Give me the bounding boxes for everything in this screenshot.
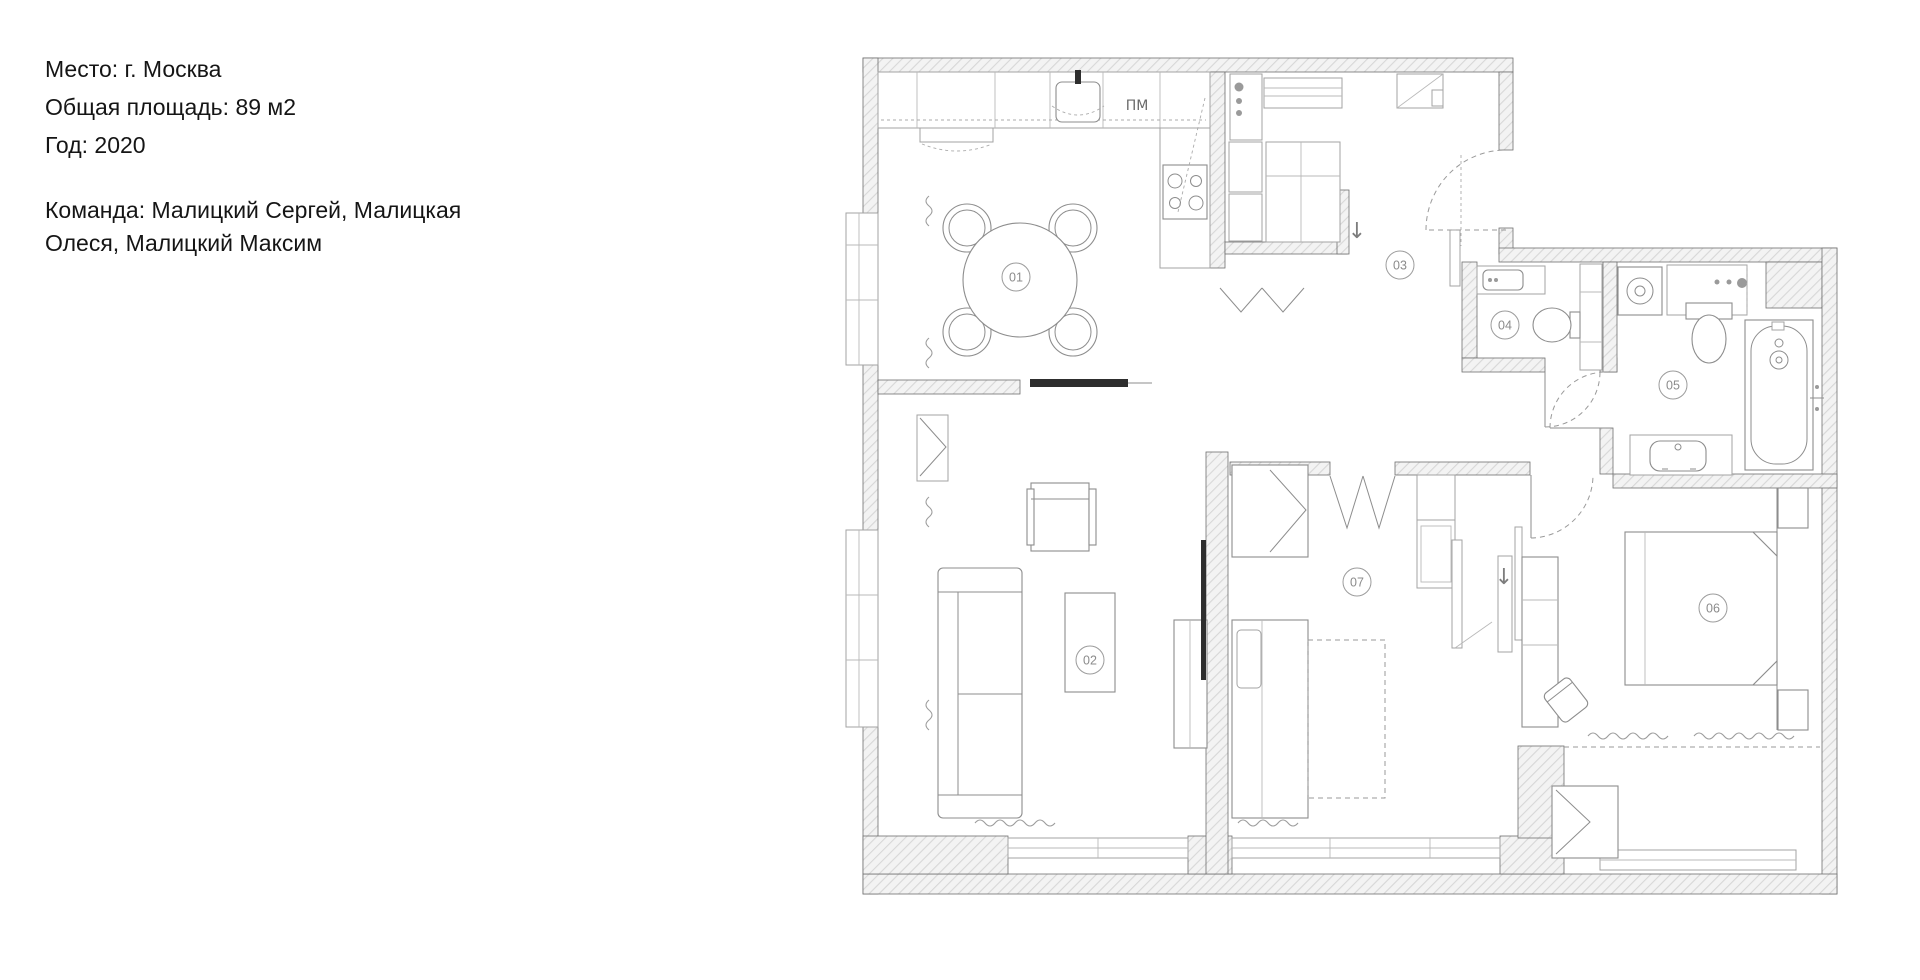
room-badge-06: 06	[1699, 594, 1727, 622]
room-badge-01: 01	[1002, 263, 1030, 291]
room-badge-02: 02	[1076, 646, 1104, 674]
wardrobe	[1232, 465, 1308, 557]
nightstand	[1778, 488, 1808, 528]
page: Место: г. Москва Общая площадь: 89 м2 Го…	[0, 0, 1920, 980]
hallway: ↓	[1220, 74, 1461, 312]
wc-cabinet	[1580, 264, 1602, 370]
kids-room: ↓	[1232, 465, 1513, 818]
living-room	[917, 379, 1207, 818]
closet-arrow: ↓	[1495, 565, 1513, 590]
kitchen-sink	[1056, 82, 1100, 122]
bathtub	[1745, 320, 1813, 470]
svg-text:03: 03	[1393, 259, 1407, 273]
daybed	[1552, 786, 1618, 858]
sofa	[938, 568, 1022, 818]
svg-text:05: 05	[1666, 379, 1680, 393]
floor-plan: ПМ	[0, 0, 1920, 980]
balcony	[1552, 786, 1618, 858]
svg-text:07: 07	[1350, 576, 1364, 590]
nightstand	[1778, 690, 1808, 730]
room-badge-03: 03	[1386, 251, 1414, 279]
kitchen-dining-room: ПМ	[878, 70, 1210, 356]
svg-text:06: 06	[1706, 602, 1720, 616]
bath-toilet	[1692, 315, 1726, 363]
bed-07	[1232, 620, 1385, 818]
wc-toilet	[1533, 308, 1571, 342]
room-badge-04: 04	[1491, 311, 1519, 339]
tv	[1201, 540, 1206, 680]
room-badge-07: 07	[1343, 568, 1371, 596]
svg-text:04: 04	[1498, 319, 1512, 333]
armchair	[1027, 483, 1096, 551]
entry-arrow: ↓	[1348, 219, 1366, 244]
kitchen-tap	[1075, 70, 1081, 84]
cabinet	[917, 415, 948, 481]
sliding-partition	[1030, 379, 1128, 387]
svg-text:02: 02	[1083, 654, 1097, 668]
stove	[1163, 165, 1207, 219]
room-badge-05: 05	[1659, 371, 1687, 399]
washing-machine	[1618, 267, 1662, 315]
dishwasher-label: ПМ	[1126, 98, 1149, 114]
coffee-table	[1065, 593, 1115, 692]
svg-text:01: 01	[1009, 271, 1023, 285]
bedroom	[1522, 488, 1808, 730]
